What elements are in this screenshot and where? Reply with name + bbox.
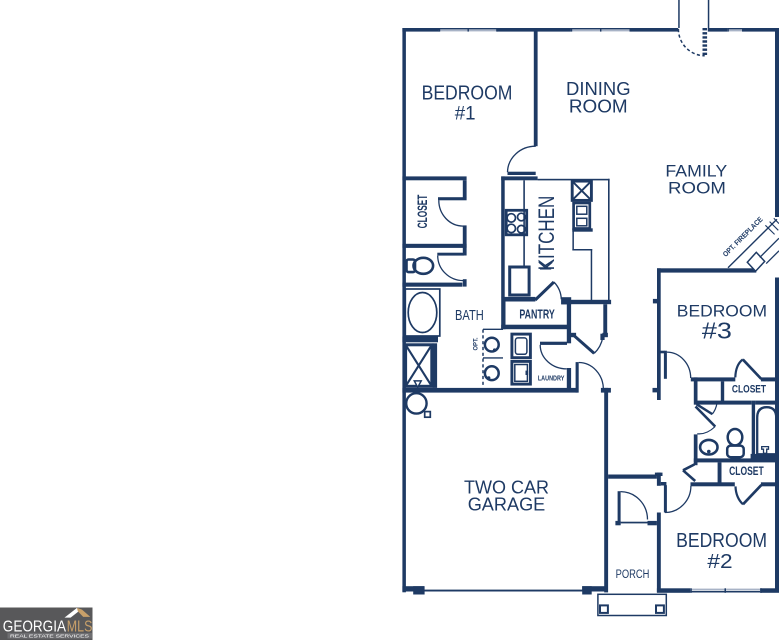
svg-text:PORCH: PORCH [616, 567, 650, 581]
svg-text:#1: #1 [455, 104, 476, 125]
svg-text:OPT.: OPT. [473, 337, 480, 350]
svg-text:CLOSET: CLOSET [732, 384, 766, 396]
svg-text:BEDROOM: BEDROOM [422, 83, 513, 105]
svg-text:ROOM: ROOM [569, 97, 628, 117]
svg-text:PANTRY: PANTRY [519, 308, 555, 322]
svg-text:ROOM: ROOM [668, 179, 726, 198]
svg-text:KITCHEN: KITCHEN [534, 196, 559, 271]
svg-text:#2: #2 [707, 551, 732, 573]
svg-text:REAL ESTATE SERVICES: REAL ESTATE SERVICES [10, 634, 90, 640]
svg-text:#3: #3 [702, 318, 732, 344]
svg-text:BEDROOM: BEDROOM [676, 530, 767, 552]
svg-text:CLOSET: CLOSET [729, 465, 764, 478]
svg-text:LAUNDRY: LAUNDRY [538, 376, 565, 383]
svg-text:GARAGE: GARAGE [468, 495, 546, 515]
svg-text:BATH: BATH [455, 307, 484, 324]
svg-text:CLOSET: CLOSET [414, 194, 430, 228]
